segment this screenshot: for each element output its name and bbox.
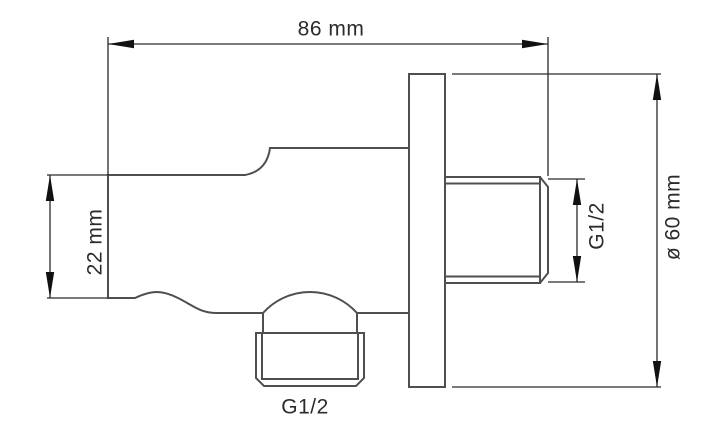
arrow-60-bottom-icon: [653, 361, 661, 387]
arrow-22-bottom-icon: [46, 272, 54, 298]
technical-drawing-canvas: 86 mm 22 mm G1/2 ø 60 mm G1/2: [0, 0, 720, 442]
body-top-edge: [108, 148, 409, 175]
dim-22mm-label: 22 mm: [85, 209, 106, 276]
outlet-neck: [263, 313, 357, 333]
part-outline: [108, 74, 548, 387]
arrow-86-left-icon: [108, 40, 134, 48]
arrow-wall-thread-top-icon: [573, 179, 581, 205]
dim-86mm-label: 86 mm: [298, 19, 365, 40]
arrow-wall-thread-bottom-icon: [573, 256, 581, 282]
dim-86-extension-lines: [108, 37, 548, 176]
drawing-linework: [0, 0, 720, 442]
arrow-22-top-icon: [46, 175, 54, 201]
plate-diameter-label: ø 60 mm: [663, 174, 684, 260]
outlet-dome: [263, 292, 357, 313]
wall-thread-label: G1/2: [587, 202, 608, 250]
arrow-60-top-icon: [653, 74, 661, 100]
arrow-86-right-icon: [522, 40, 548, 48]
outlet-thread-label: G1/2: [281, 397, 329, 418]
body-bottom-edge: [108, 292, 409, 313]
wall-plate: [409, 74, 445, 387]
wall-thread-outer: [445, 177, 548, 283]
